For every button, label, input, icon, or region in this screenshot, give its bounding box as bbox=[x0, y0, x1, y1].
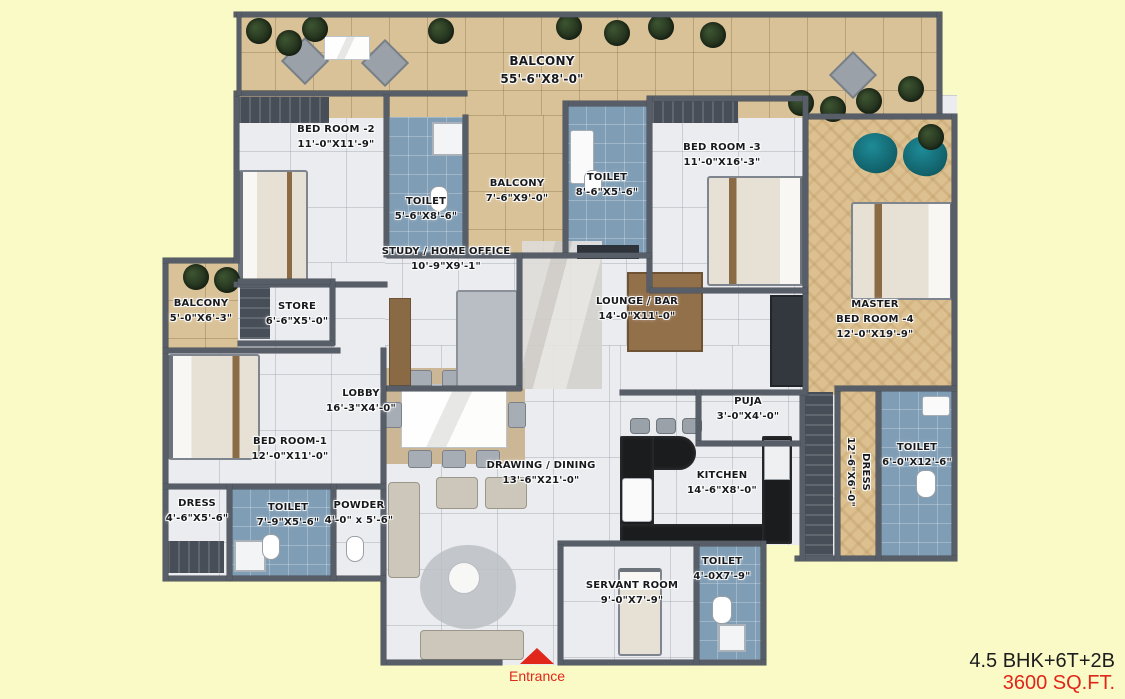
wall-segment bbox=[558, 541, 766, 546]
room-name: LOUNGE / BAR bbox=[596, 294, 678, 309]
wall-segment bbox=[696, 390, 701, 445]
wall-segment bbox=[876, 386, 881, 561]
entrance-arrow-icon bbox=[520, 648, 554, 664]
wall-segment bbox=[647, 96, 652, 292]
chair bbox=[408, 450, 432, 468]
room-label-balcony-mid: BALCONY7'-6"X9'-0" bbox=[486, 176, 549, 206]
wall-segment bbox=[803, 96, 808, 395]
plant-icon bbox=[183, 264, 209, 290]
room-label-balcony-left: BALCONY5'-0"X6'-3" bbox=[170, 296, 233, 326]
room-dims: 3'-0"X4'-0" bbox=[717, 409, 780, 424]
room-dims: 11'-0"X16'-3" bbox=[683, 155, 761, 170]
room-label-toilet-bedroom1: TOILET7'-9"X5'-6" bbox=[257, 500, 320, 530]
wall-segment bbox=[238, 279, 330, 284]
plan-area: 3600 SQ.FT. bbox=[969, 672, 1115, 694]
wall-segment bbox=[558, 660, 766, 665]
room-dims: 12'-6"X6'-0" bbox=[843, 437, 858, 507]
wardrobe bbox=[239, 97, 329, 123]
room-dims: 4'-6"X5'-6" bbox=[166, 511, 229, 526]
room-dims: 14'-6"X8'-0" bbox=[687, 483, 757, 498]
room-name: STUDY / HOME OFFICE bbox=[382, 244, 511, 259]
room-label-kitchen: KITCHEN14'-6"X8'-0" bbox=[687, 468, 757, 498]
room-name: TOILET bbox=[576, 170, 639, 185]
chair bbox=[508, 402, 526, 428]
room-label-balcony-top: BALCONY55'-6"X8'-0" bbox=[500, 52, 583, 88]
wardrobe bbox=[168, 541, 224, 573]
washbasin bbox=[922, 396, 950, 416]
room-dims: 13'-6"X21'-0" bbox=[486, 473, 595, 488]
toilet-fixture bbox=[916, 470, 936, 498]
wall-segment bbox=[163, 348, 340, 353]
room-name: MASTER bbox=[836, 297, 914, 312]
room-name: LOBBY bbox=[326, 386, 396, 401]
room-dims: 4'-0" x 5'-6" bbox=[325, 513, 394, 528]
wall-segment bbox=[387, 386, 521, 391]
bed bbox=[168, 354, 260, 460]
room-dims: 7'-9"X5'-6" bbox=[257, 515, 320, 530]
wall-segment bbox=[234, 91, 239, 263]
room-dims: 5'-0"X6'-3" bbox=[170, 311, 233, 326]
wall-segment bbox=[330, 279, 335, 345]
plant-icon bbox=[214, 267, 240, 293]
wardrobe bbox=[652, 99, 738, 123]
wall-segment bbox=[238, 341, 334, 346]
wall-segment bbox=[381, 660, 502, 665]
wall-segment bbox=[237, 12, 241, 95]
room-name: BED ROOM -2 bbox=[297, 122, 375, 137]
toilet-fixture bbox=[712, 596, 732, 624]
room-name: PUJA bbox=[717, 394, 780, 409]
room-dims: 55'-6"X8'-0" bbox=[500, 70, 583, 88]
room-name: TOILET bbox=[693, 554, 750, 569]
plant-icon bbox=[918, 124, 944, 150]
wall-segment bbox=[805, 114, 957, 119]
bed bbox=[851, 202, 955, 300]
wall-segment bbox=[952, 114, 957, 561]
marble-passage bbox=[522, 241, 602, 389]
room-dims: 12'-0"X11'-0" bbox=[252, 449, 329, 464]
daybed bbox=[456, 290, 518, 388]
room-label-powder: POWDER4'-0" x 5'-6" bbox=[325, 498, 394, 528]
room-name: DRAWING / DINING bbox=[486, 458, 595, 473]
table bbox=[324, 36, 370, 60]
wall-segment bbox=[800, 390, 805, 561]
plant-icon bbox=[648, 14, 674, 40]
floor-plan: BALCONY55'-6"X8'-0" BED ROOM -211'-0"X11… bbox=[0, 0, 1125, 699]
room-dims: 12'-0"X19'-9" bbox=[836, 327, 914, 342]
room-name: TOILET bbox=[882, 440, 952, 455]
chair bbox=[442, 450, 466, 468]
room-label-toilet-master: TOILET6'-0"X12'-6" bbox=[882, 440, 952, 470]
room-name: SERVANT ROOM bbox=[586, 578, 678, 593]
room-name: TOILET bbox=[395, 194, 458, 209]
room-dims: 7'-6"X9'-0" bbox=[486, 191, 549, 206]
shower-tray bbox=[718, 624, 746, 652]
plant-icon bbox=[246, 18, 272, 44]
room-label-bedroom-2: BED ROOM -211'-0"X11'-9" bbox=[297, 122, 375, 152]
plant-icon bbox=[302, 16, 328, 42]
room-dims: 11'-0"X11'-9" bbox=[297, 137, 375, 152]
plant-icon bbox=[556, 14, 582, 40]
wall-segment bbox=[234, 12, 942, 17]
wall-segment bbox=[463, 115, 468, 257]
plan-type: 4.5 BHK+6T+2B bbox=[969, 650, 1115, 672]
room-label-study: STUDY / HOME OFFICE10'-9"X9'-1" bbox=[382, 244, 511, 274]
table bbox=[401, 384, 507, 448]
toilet-fixture bbox=[346, 536, 364, 562]
room-name: BED ROOM -3 bbox=[683, 140, 761, 155]
room-label-store: STORE6'-6"X5'-0" bbox=[266, 299, 329, 329]
room-name: POWDER bbox=[325, 498, 394, 513]
room-label-puja: PUJA3'-0"X4'-0" bbox=[717, 394, 780, 424]
sofa bbox=[388, 482, 420, 578]
wall-segment bbox=[563, 101, 568, 257]
room-name: BED ROOM-1 bbox=[252, 434, 329, 449]
room-dims: 5'-6"X8'-6" bbox=[395, 209, 458, 224]
room-label-bedroom-1: BED ROOM-112'-0"X11'-0" bbox=[252, 434, 329, 464]
wall-segment bbox=[761, 541, 766, 665]
room-label-toilet-servant: TOILET4'-0X7'-9" bbox=[693, 554, 750, 584]
plan-summary: 4.5 BHK+6T+2B 3600 SQ.FT. bbox=[969, 650, 1115, 694]
wall-segment bbox=[163, 484, 386, 489]
wall-segment bbox=[517, 253, 522, 390]
washbasin bbox=[622, 478, 652, 522]
room-dims: 14'-0"X11'-0" bbox=[596, 309, 678, 324]
room-label-toilet-bedroom2: TOILET5'-6"X8'-6" bbox=[395, 194, 458, 224]
fridge bbox=[764, 440, 790, 480]
wall-segment bbox=[163, 258, 238, 263]
entrance-label: Entrance bbox=[509, 668, 565, 684]
wall-segment bbox=[163, 576, 386, 581]
bed bbox=[238, 170, 308, 282]
plant-icon bbox=[700, 22, 726, 48]
wall-segment bbox=[696, 441, 800, 446]
plant-icon bbox=[788, 90, 814, 116]
wall-segment bbox=[835, 386, 957, 391]
toilet-fixture bbox=[262, 534, 280, 560]
room-dims: 4'-0X7'-9" bbox=[693, 569, 750, 584]
room-dims: 6'-0"X12'-6" bbox=[882, 455, 952, 470]
shelf-unit bbox=[770, 295, 804, 387]
shower-tray bbox=[432, 122, 464, 156]
sofa bbox=[436, 477, 478, 509]
room-label-master-bedroom: MASTERBED ROOM -412'-0"X19'-9" bbox=[836, 297, 914, 342]
room-dims: 16'-3"X4'-0" bbox=[326, 401, 396, 416]
room-label-dress-bedroom1: DRESS4'-6"X5'-6" bbox=[166, 496, 229, 526]
room-name: STORE bbox=[266, 299, 329, 314]
entrance-marker: Entrance bbox=[509, 648, 565, 684]
room-name: KITCHEN bbox=[687, 468, 757, 483]
room-name: DRESS bbox=[858, 437, 873, 507]
room-dims: 10'-9"X9'-1" bbox=[382, 259, 511, 274]
wall-segment bbox=[647, 96, 807, 101]
room-name: BALCONY bbox=[486, 176, 549, 191]
plant-icon bbox=[604, 20, 630, 46]
room-name: DRESS bbox=[166, 496, 229, 511]
wall-segment bbox=[563, 101, 651, 106]
coffee-table bbox=[448, 562, 480, 594]
bed bbox=[707, 176, 805, 286]
bar-stool bbox=[630, 418, 650, 434]
floor-plan-page: BALCONY55'-6"X8'-0" BED ROOM -211'-0"X11… bbox=[0, 0, 1125, 699]
room-dims: 8'-6"X5'-6" bbox=[576, 185, 639, 200]
room-name: BALCONY bbox=[500, 52, 583, 70]
room-label-bedroom-3: BED ROOM -311'-0"X16'-3" bbox=[683, 140, 761, 170]
wall-segment bbox=[558, 545, 563, 665]
room-name-2: BED ROOM -4 bbox=[836, 312, 914, 327]
room-label-dress-master: DRESS12'-6"X6'-0" bbox=[843, 437, 873, 507]
wardrobe bbox=[805, 392, 833, 556]
wall-segment bbox=[835, 386, 840, 561]
desk bbox=[389, 298, 411, 386]
bar-stool bbox=[656, 418, 676, 434]
room-name: TOILET bbox=[257, 500, 320, 515]
plant-icon bbox=[898, 76, 924, 102]
room-label-servant-room: SERVANT ROOM9'-0"X7'-9" bbox=[586, 578, 678, 608]
plant-icon bbox=[856, 88, 882, 114]
room-dims: 6'-6"X5'-0" bbox=[266, 314, 329, 329]
wall-segment bbox=[937, 12, 942, 119]
plant-icon bbox=[276, 30, 302, 56]
wall-segment bbox=[384, 95, 389, 257]
wall-segment bbox=[234, 91, 467, 96]
plant-icon bbox=[428, 18, 454, 44]
room-label-lobby: LOBBY16'-3"X4'-0" bbox=[326, 386, 396, 416]
room-label-drawing-dining: DRAWING / DINING13'-6"X21'-0" bbox=[486, 458, 595, 488]
room-label-toilet-bedroom3: TOILET8'-6"X5'-6" bbox=[576, 170, 639, 200]
wall-segment bbox=[163, 258, 168, 581]
room-dims: 9'-0"X7'-9" bbox=[586, 593, 678, 608]
room-name: BALCONY bbox=[170, 296, 233, 311]
room-label-lounge-bar: LOUNGE / BAR14'-0"X11'-0" bbox=[596, 294, 678, 324]
wall-segment bbox=[650, 288, 807, 293]
